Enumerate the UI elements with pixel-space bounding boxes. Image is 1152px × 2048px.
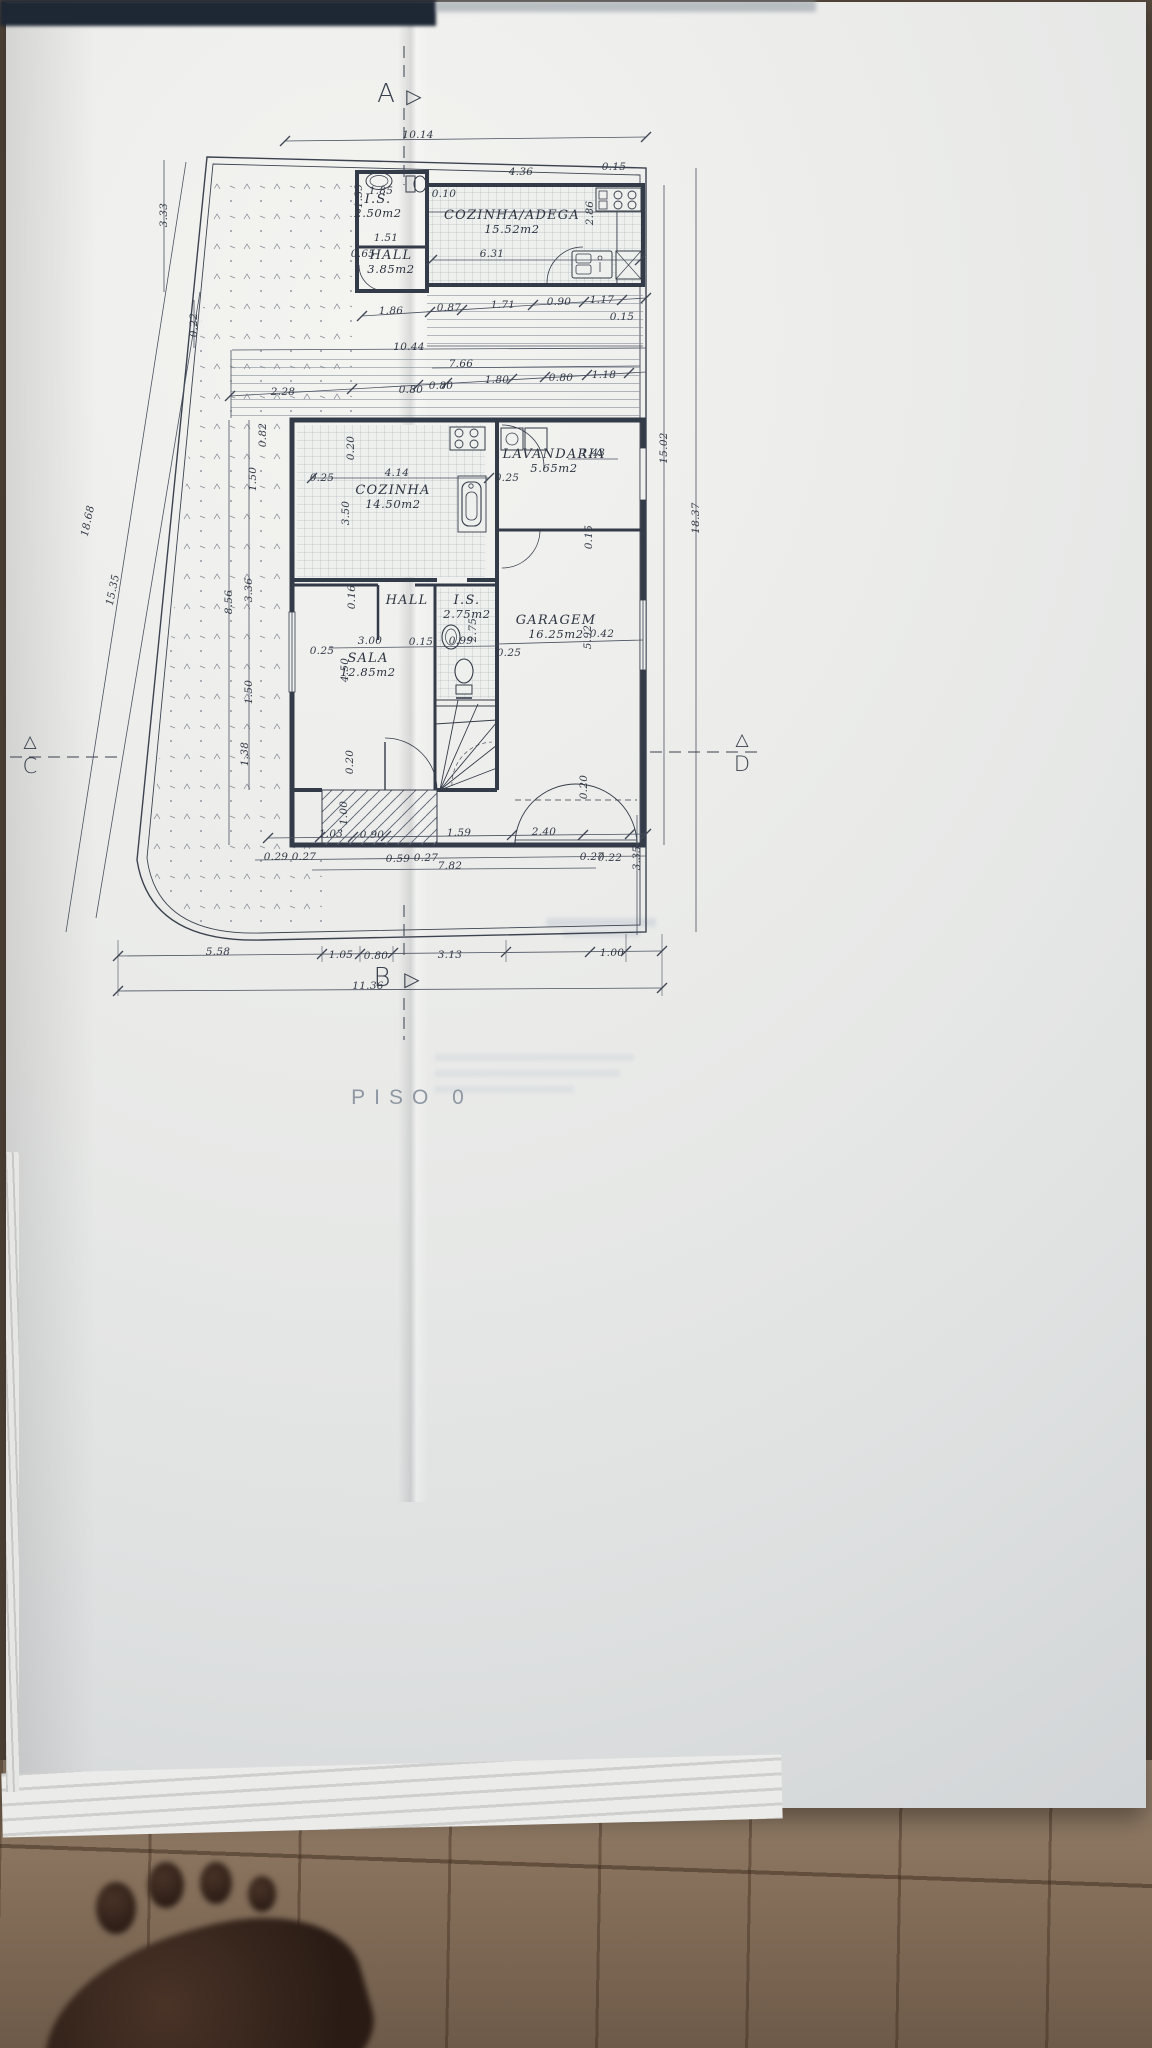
toilet-icon — [455, 659, 473, 698]
background-top-strip — [0, 0, 436, 26]
washbasin-icon — [442, 625, 460, 649]
section-marker-c: C — [23, 754, 38, 778]
door-arc — [385, 738, 437, 790]
sink-icon — [458, 476, 486, 532]
central-bathroom — [438, 588, 495, 698]
photo-scene: 10.141.851.391.510.650.104.360.152.866.3… — [0, 0, 1152, 2048]
garage-doors — [515, 784, 637, 846]
stove-icon — [596, 188, 641, 211]
floor-title: PISO 0 — [322, 1086, 502, 1110]
dryer-icon — [525, 428, 547, 450]
sink-icon — [572, 251, 612, 278]
section-marker-d: D — [734, 752, 750, 776]
floor-plan-drawing — [0, 0, 1152, 2048]
entrance-porch — [322, 738, 437, 845]
kitchen-adega — [427, 185, 643, 285]
section-triangle-a-icon: ▷ — [406, 84, 421, 108]
fridge-icon — [616, 251, 641, 279]
annex-walls — [357, 172, 427, 291]
section-marker-a: A — [377, 79, 395, 109]
stairs — [435, 700, 497, 790]
section-triangle-c-icon: △ — [23, 732, 36, 752]
section-triangle-b-icon: ▷ — [404, 967, 419, 991]
stove-icon — [450, 427, 485, 450]
section-marker-b: B — [373, 963, 390, 993]
washer-icon — [501, 428, 523, 450]
door-arc — [502, 530, 540, 568]
lavandaria-fixtures — [501, 425, 547, 568]
toilet-icon — [406, 176, 426, 192]
background-top-blur — [436, 0, 816, 12]
section-triangle-d-icon: △ — [735, 730, 748, 750]
